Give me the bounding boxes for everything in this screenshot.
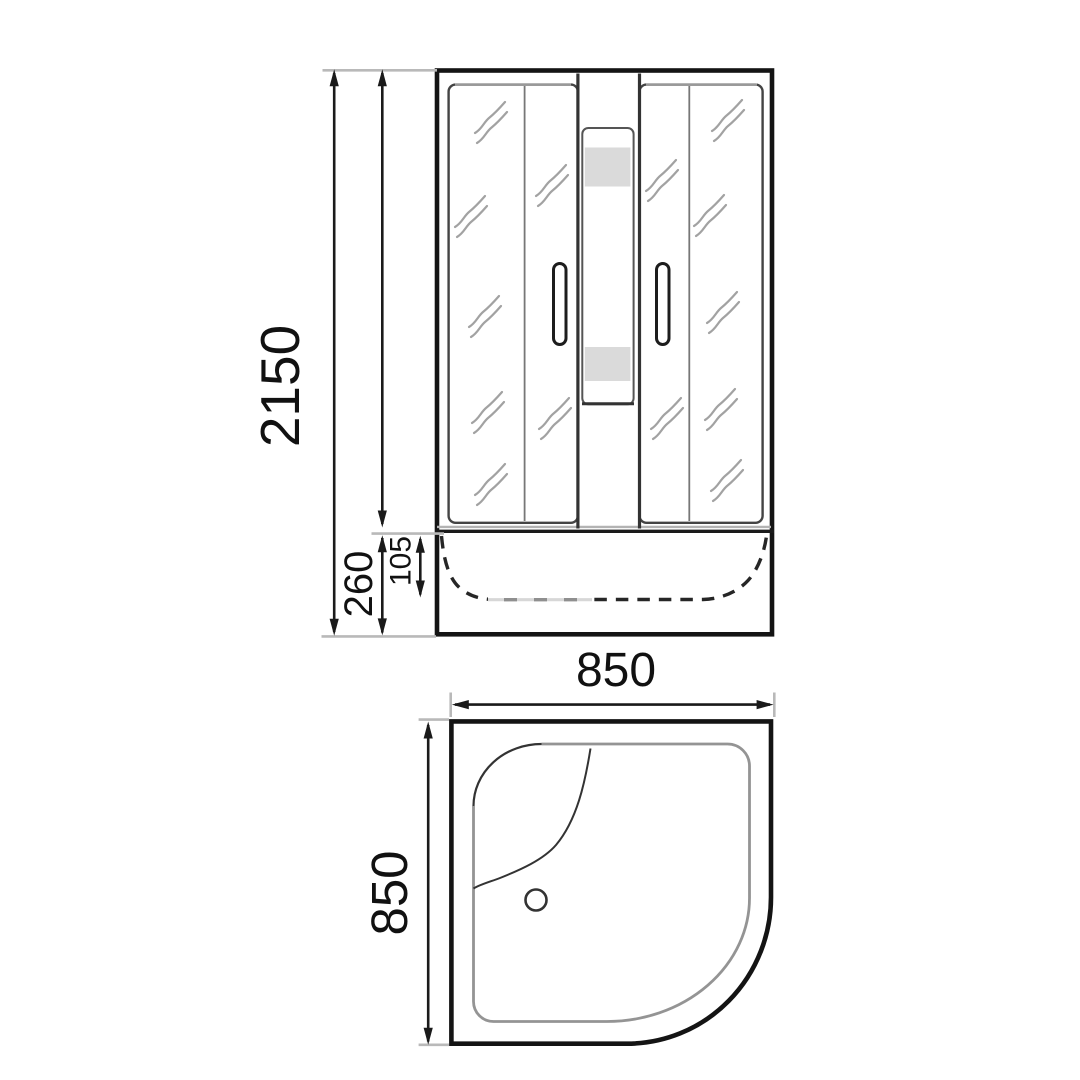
svg-text:850: 850 [361, 850, 418, 935]
svg-text:105: 105 [385, 536, 418, 586]
svg-text:850: 850 [576, 644, 656, 697]
svg-text:2150: 2150 [249, 325, 311, 447]
svg-text:260: 260 [337, 551, 381, 618]
